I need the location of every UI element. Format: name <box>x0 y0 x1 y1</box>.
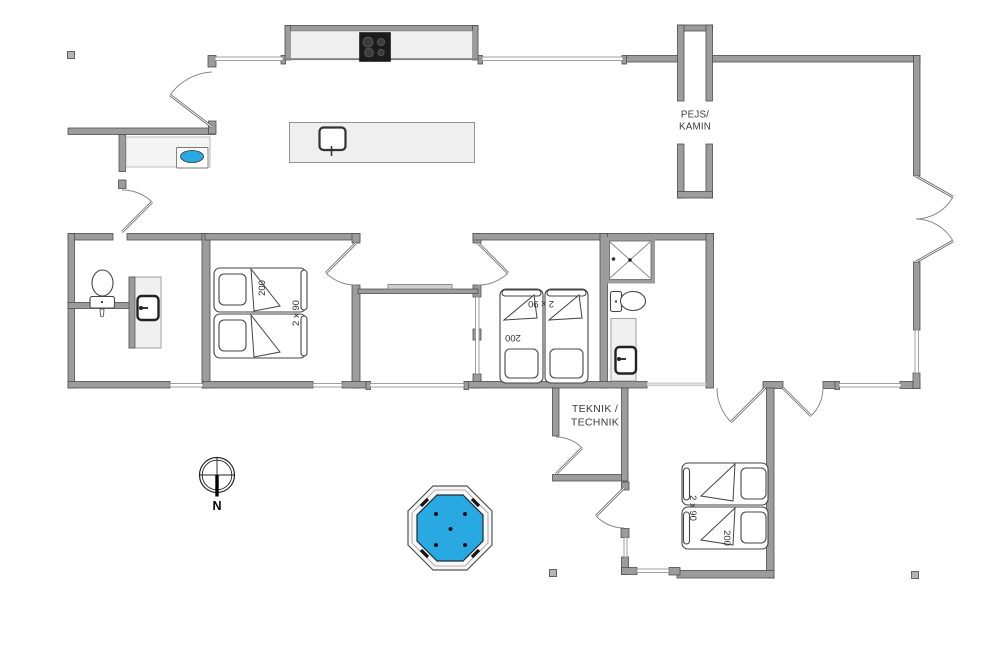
hot-tub <box>408 486 492 570</box>
entry-washbasin-bowl <box>181 151 204 163</box>
bedroom-west-door-arc <box>326 273 356 285</box>
floor-plan-drawing: PEJS/ KAMIN <box>0 0 1000 656</box>
bathroom2-door-threshold <box>647 383 706 386</box>
fireplace-label-line2: KAMIN <box>679 122 711 133</box>
walls <box>68 56 920 579</box>
shower <box>608 239 654 282</box>
bed-width-label: 2 x 90 <box>687 495 698 521</box>
island-sink <box>320 128 346 151</box>
hallway-sliding-door <box>358 285 478 294</box>
floor-plan: PEJS/ KAMIN <box>0 0 1000 656</box>
terrace-door-right-arc <box>811 388 823 416</box>
pillow <box>505 349 538 378</box>
shower-handle <box>612 257 616 261</box>
toilet2 <box>611 292 646 312</box>
pillow <box>741 512 766 543</box>
floor-drain <box>100 309 104 317</box>
pillow <box>550 349 583 378</box>
bed-width-label: 2 x 90 <box>291 300 302 326</box>
french-door-top-arc <box>916 197 953 219</box>
teknik-door-arc <box>556 437 582 448</box>
pillow <box>219 320 246 351</box>
utility-room-label-line2: TECHNIK <box>571 417 619 429</box>
kitchen-island <box>290 123 475 163</box>
french-door-bottom-arc <box>916 219 953 241</box>
utility-room-label-line1: TEKNIK / <box>572 403 618 415</box>
site-marker <box>550 570 557 577</box>
bedroom-south-door-arc <box>596 516 624 528</box>
bed-length-label: 200 <box>505 332 521 343</box>
bathroom2-fixtures <box>608 239 654 381</box>
site-marker <box>68 52 75 59</box>
entry-counter <box>126 137 210 168</box>
bedroom-middle-door-arc <box>478 273 508 285</box>
terrace-door-left-arc <box>717 388 731 422</box>
front-door-arc <box>170 72 212 95</box>
compass-north-label: N <box>212 499 221 513</box>
bed-length-label: 200 <box>257 280 268 296</box>
entry-door-arc <box>122 190 152 202</box>
bed-length-label: 200 <box>721 530 732 546</box>
compass-rose <box>200 458 235 497</box>
pillow <box>219 274 246 305</box>
pillow <box>741 468 766 499</box>
bathroom1-fixtures <box>90 270 161 348</box>
bed-width-label: 2 x 90 <box>528 298 554 309</box>
site-marker <box>912 572 919 579</box>
toilet-bowl <box>92 270 113 296</box>
cooktop <box>360 33 391 62</box>
fireplace-label-line1: PEJS/ <box>681 110 709 121</box>
